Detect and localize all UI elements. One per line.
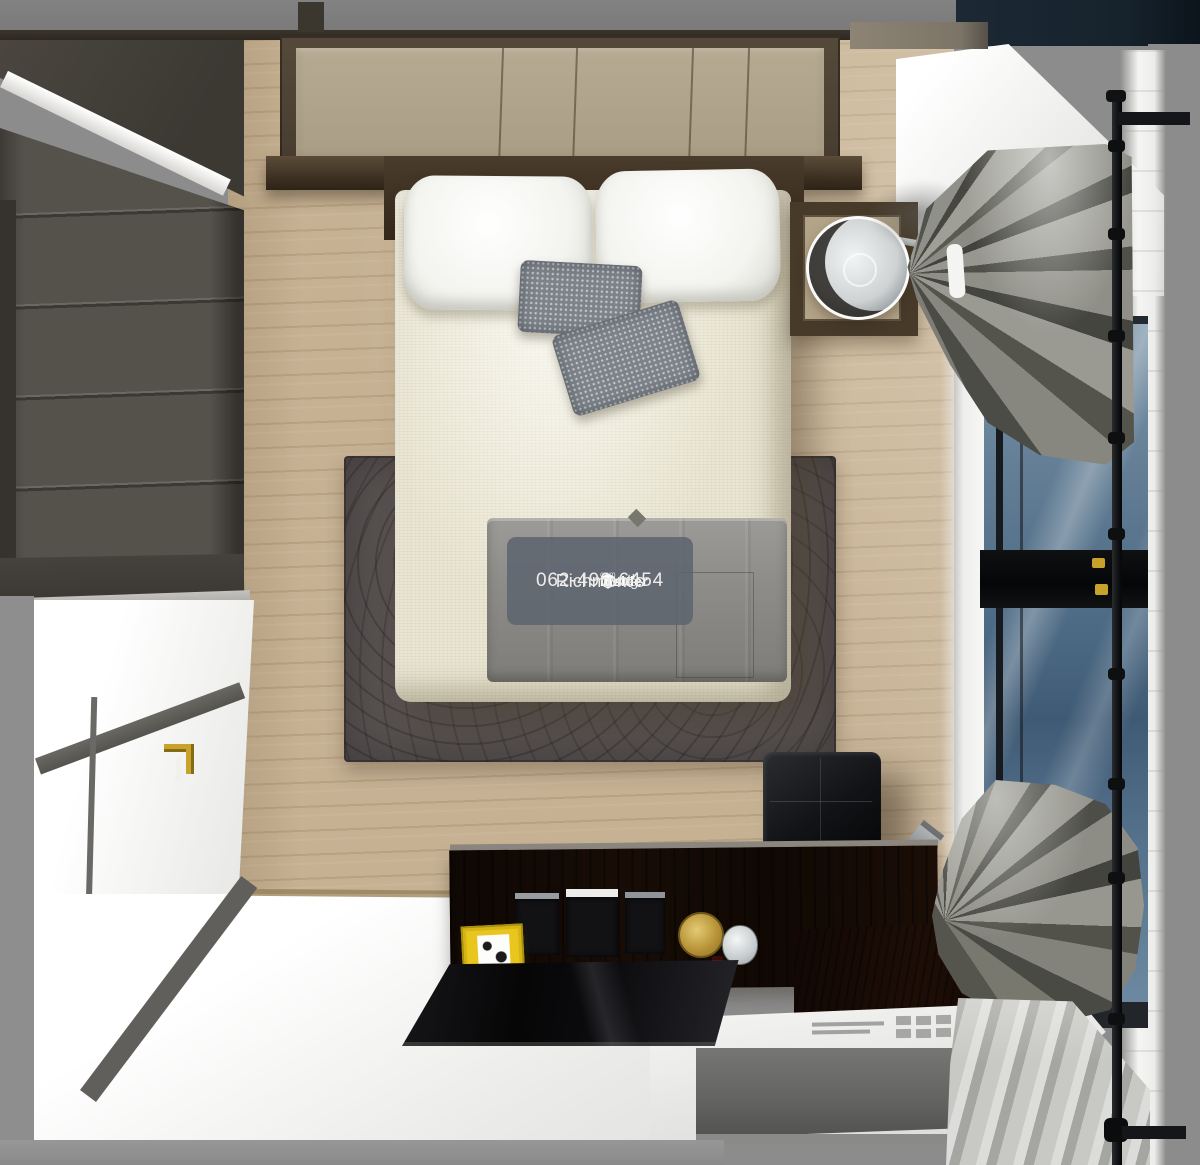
outside-left-band (0, 596, 34, 1165)
wardrobe-side-strip (0, 200, 16, 612)
window-handle-icon (1095, 584, 1108, 595)
curtain-rod (1112, 96, 1122, 1165)
curtain-ring (1108, 528, 1125, 540)
bedroom-render: Living Insider com Richmont's 062-496-64… (0, 0, 1200, 1165)
black-box-2 (566, 889, 618, 957)
vent-cell (916, 1029, 931, 1038)
black-glass-desktop (402, 960, 742, 1046)
curtain-ring (1108, 778, 1125, 790)
rod-bracket (1122, 1126, 1186, 1139)
balcony-dark-block (956, 0, 1200, 46)
door-handle-icon (186, 744, 194, 774)
outside-bottom-strip (0, 1140, 724, 1165)
glass-jar (722, 925, 758, 965)
curtain-ring (1108, 1013, 1125, 1025)
curtain-ring (1108, 432, 1125, 444)
watermark-overlay: Living Insider com Richmont's 062-496-64… (507, 537, 693, 625)
rod-bracket (1118, 112, 1190, 125)
curtain-ring (1108, 668, 1125, 680)
window-handle-icon (1092, 558, 1105, 568)
watermark-phone: 062-496-6454 (536, 570, 664, 592)
vent-cell (936, 1015, 951, 1024)
curtain-ring (1108, 872, 1125, 884)
curtain-rod-finial (1106, 90, 1126, 102)
curtain-ring (1108, 140, 1125, 152)
window-mullion (980, 550, 1148, 608)
vent-cell (916, 1016, 931, 1025)
headboard-shelf-end (850, 22, 988, 49)
vent-cell (936, 1028, 951, 1037)
gold-mirror (678, 912, 724, 958)
curtain-ring (1108, 330, 1125, 342)
vent-cell (896, 1016, 911, 1025)
curtain-ring (1108, 228, 1125, 240)
beam-notch (298, 2, 324, 32)
vent-cell (896, 1029, 911, 1038)
black-box-3 (625, 892, 665, 954)
wardrobe-body (0, 128, 244, 612)
door-key (176, 756, 182, 782)
